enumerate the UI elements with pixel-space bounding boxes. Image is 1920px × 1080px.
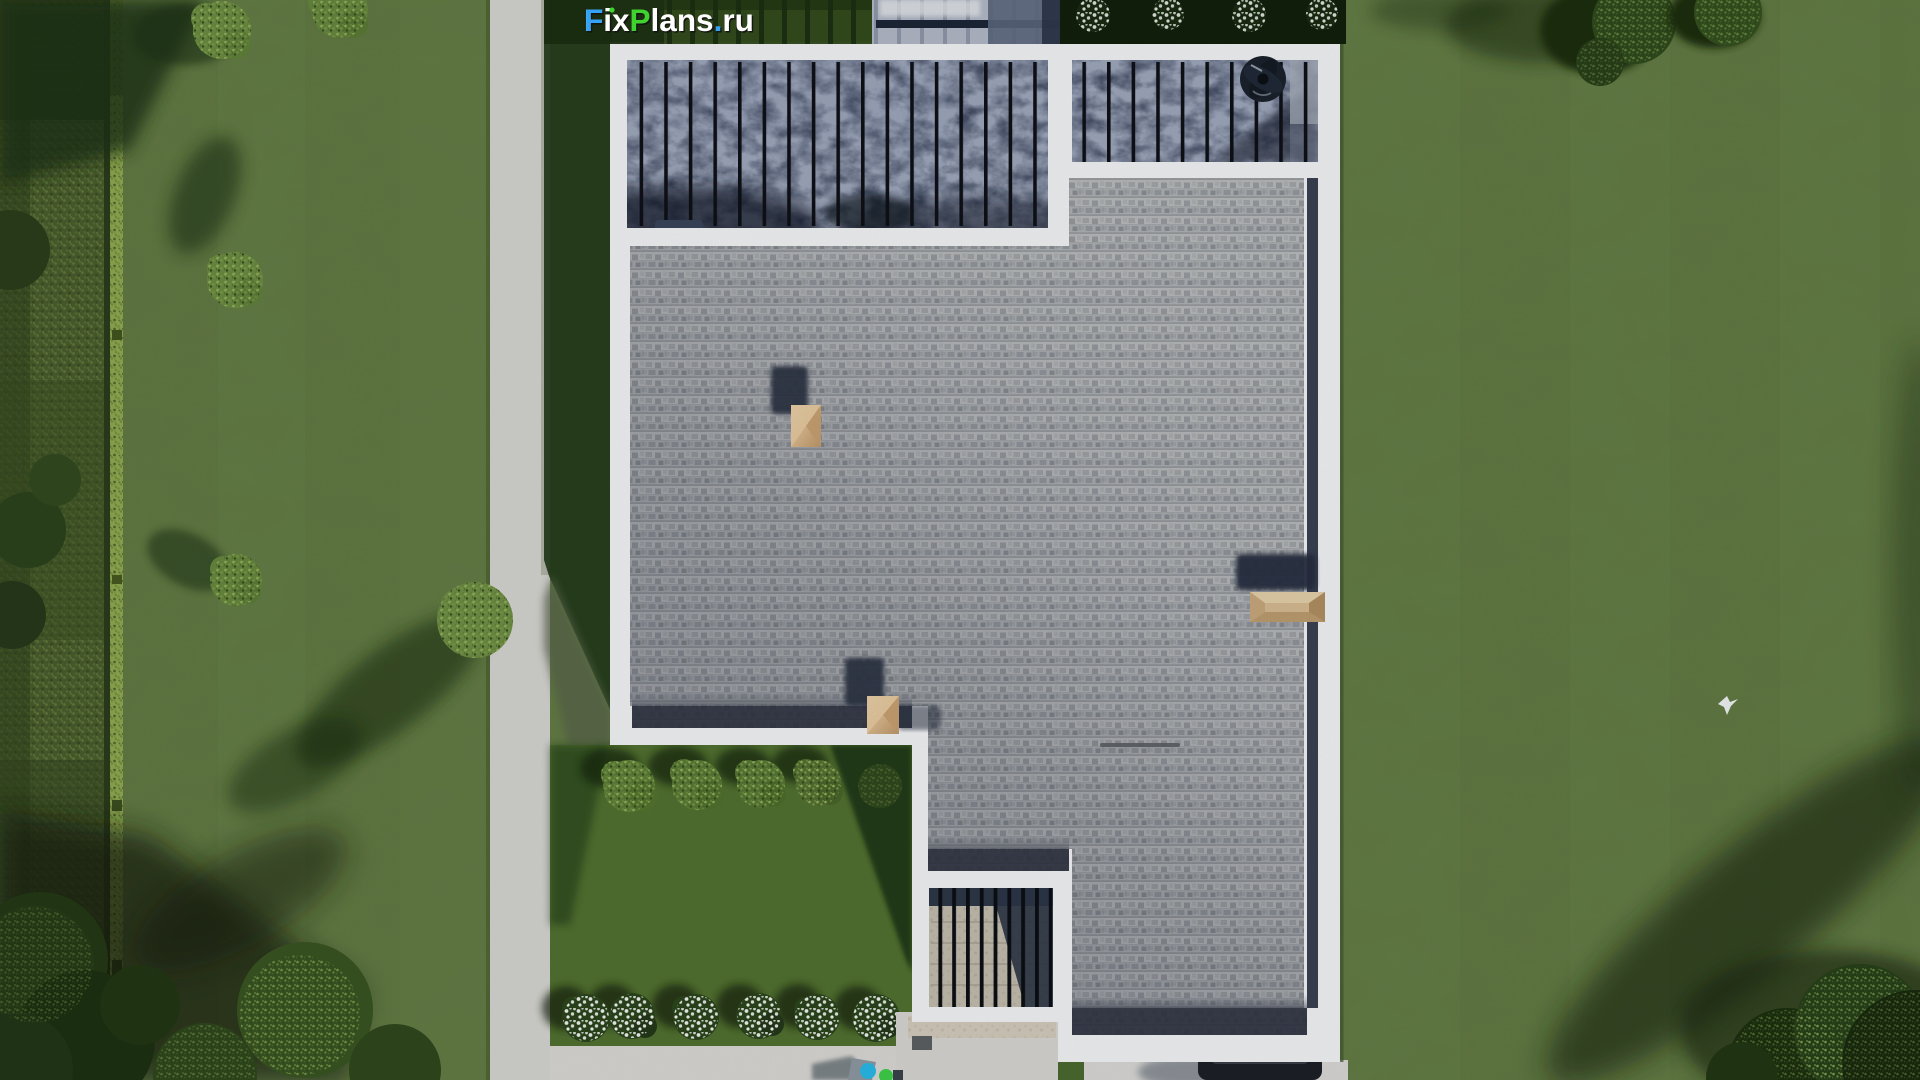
svg-text:F: F — [584, 2, 603, 38]
svg-text:FixPlans.ru: FixPlans.ru — [584, 2, 754, 38]
